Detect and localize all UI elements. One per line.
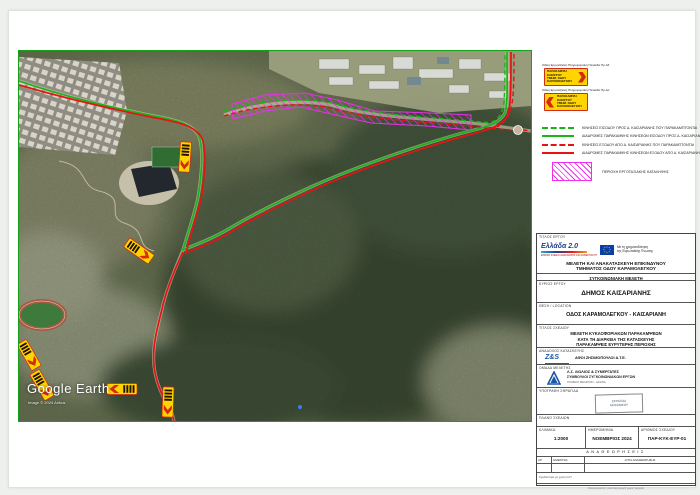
legend-item-worksite-area: ΠΕΡΙΟΧΗ ΕΡΓΟΤΑΞΙΑΚΗΣ ΚΑΤΑΛΗΨΗΣ [552,162,696,181]
location-section: ΘΕΣΗ / LOCATION ΟΔΟΣ ΚΑΡΑΜΟΛΕΓΚΟΥ - ΚΑΙΣ… [537,302,695,325]
detour-sign-left: ΠΑΡΑΚΑΜΨΗ ΚΛΕΙΣΤΟΥ ΤΜΗΜ. ΟΔΟΥ ΚΑΡΑΜΟΛΕΓΚ… [544,93,588,111]
location-value: ΟΔΟΣ ΚΑΡΑΜΟΛΕΓΚΟΥ - ΚΑΙΣΑΡΙΑΝΗ [537,312,695,318]
legend-item-green-dashed: ΚΙΝΗΣΕΙΣ ΕΙΣΟΔΟΥ ΠΡΟΣ Δ. ΚΑΙΣΑΡΙΑΝΗΣ ΠΟΥ… [542,126,696,130]
greece-2-0-logo: Ελλάδα 2.0 ΕΘΝΙΚΟ ΣΧΕΔΙΟ ΑΝΑΚΑΜΨΗΣ ΚΑΙ Α… [541,243,597,257]
worksite-area-swatch [552,162,592,181]
roundabout [514,126,523,135]
contractor-name: ΑΦΟΙ ΖΗΣΙΜΟΠΟΥΛΟΙ Α.Τ.Ε. [575,356,626,360]
satellite-map: Google Earth Image © 2024 Airbus [18,50,532,422]
signature-section: ΥΠΟΓΡΑΦΗ ΣΦΡΑΓΙΔΑ ΣΦΡΑΓΙΔΑ ΜΗΧΑΝΙΚΟΥ [537,387,695,415]
google-earth-logo: Google Earth [27,381,110,396]
design-team-section: ΟΜΑΔΑ ΜΕΛΕΤΗΣ Λ.Σ. ΛΙΟΛΙΟΣ & ΣΥΝΕΡΓΑΤΕΣ … [537,364,695,388]
detour-sign-marker [162,387,174,417]
revisions-columns: ΑΡ. ΗΜΕΡ/ΝΙΑ ΑΙΤΙΑ ΑΝΑΘΕΩΡΗΣΗΣ [537,457,695,464]
team-address: ΓΡΑΦΕΙΟ ΜΕΛΕΤΩΝ - ΑΘΗΝΑ [567,380,606,384]
project-section: ΤΙΤΛΟΣ ΕΡΓΟΥ Ελλάδα 2.0 ΕΘΝΙΚΟ ΣΧΕΔΙΟ ΑΝ… [537,234,695,280]
revision-note: Σχεδιάστηκε με χρήση Η/Υ [537,473,695,484]
revisions-header: ΑΝΑΘΕΩΡΗΣΕΙΣ [537,449,695,457]
chevron-left-icon [546,97,554,108]
project-label: ΤΙΤΛΟΣ ΕΡΓΟΥ [539,235,565,239]
funding-logos: Ελλάδα 2.0 ΕΘΝΙΚΟ ΣΧΕΔΙΟ ΑΝΑΚΑΜΨΗΣ ΚΑΙ Α… [541,240,691,260]
red-dashed-swatch [542,144,574,146]
title-block: ΤΙΤΛΟΣ ΕΡΓΟΥ Ελλάδα 2.0 ΕΘΝΙΚΟ ΣΧΕΔΙΟ ΑΝ… [536,233,696,486]
revisions-section: ΑΝΑΘΕΩΡΗΣΕΙΣ ΑΡ. ΗΜΕΡ/ΝΙΑ ΑΙΤΙΑ ΑΝΑΘΕΩΡΗ… [537,448,695,486]
eu-flag-icon [600,245,614,255]
red-solid-swatch [542,152,574,154]
green-dashed-swatch [542,127,574,129]
green-solid-swatch [542,135,574,137]
legend: Οδική Εργοταξιακή Πληροφοριακή Πινακίδα … [536,61,696,181]
eu-funding-text: Με τη χρηματοδότηση της Ευρωπαϊκής Ένωση… [617,246,653,254]
legend-item-green-solid: ΔΙΑΔΡΟΜΕΣ ΠΑΡΑΚΑΜΨΗΣ ΚΙΝΗΣΕΩΝ ΕΙΣΟΔΟΥ ΠΡ… [542,134,696,138]
team-role: ΣΥΜΒΟΥΛΟΙ ΣΥΓΚΟΙΝΩΝΙΑΚΩΝ ΕΡΓΩΝ [567,375,635,379]
detour-sign-text: ΠΑΡΑΚΑΜΨΗ ΚΛΕΙΣΤΟΥ ΤΜΗΜ. ΟΔΟΥ ΚΑΡΑΜΟΛΕΓΚ… [555,95,587,109]
legend-sign-caption: Οδική Εργοταξιακή Πληροφοριακή Πινακίδα … [542,88,696,92]
contractor-section: ΑΝΑΔΟΧΟΣ ΚΑΤΑΣΚΕΥΗΣ Z&S ΑΦΟΙ ΖΗΣΙΜΟΠΟΥΛΟ… [537,347,695,365]
contractor-logo: Z&S [545,354,569,364]
scale-date-number-row: ΚΛΙΜΑΚΑ 1:2000 ΗΜΕΡΟΜΗΝΙΑ ΝΟΕΜΒΡΙΟΣ 2024… [537,426,695,449]
engineer-stamp: ΣΦΡΑΓΙΔΑ ΜΗΧΑΝΙΚΟΥ [595,393,643,413]
chevron-right-icon [578,72,586,83]
detour-sign-marker [107,384,137,395]
design-team-logo [547,371,561,385]
legend-item-red-dashed: ΚΙΝΗΣΕΙΣ ΕΞΟΔΟΥ ΑΠΟ Δ. ΚΑΙΣΑΡΙΑΝΗΣ ΠΟΥ Π… [542,143,696,147]
scale-value: 1:2000 [537,436,585,441]
legend-sign-caption: Οδική Εργοταξιακή Πληροφοριακή Πινακίδα … [542,63,696,67]
date-value: ΝΟΕΜΒΡΙΟΣ 2024 [586,436,638,441]
revision-note: Απαγορεύεται η αναπαραγωγή χωρίς έγκριση [537,484,695,494]
team-name: Λ.Σ. ΛΙΟΛΙΟΣ & ΣΥΝΕΡΓΑΤΕΣ [567,370,619,374]
stadium-track [19,301,65,329]
detour-sign-right: ΠΑΡΑΚΑΜΨΗ ΚΛΕΙΣΤΟΥ ΤΜΗΜ. ΟΔΟΥ ΚΑΡΑΜΟΛΕΓΚ… [544,68,588,86]
date-cell: ΗΜΕΡΟΜΗΝΙΑ ΝΟΕΜΒΡΙΟΣ 2024 [586,427,639,449]
project-title: ΜΕΛΕΤΗ ΚΑΙ ΑΝΑΚΑΤΑΣΚΕΥΗ ΕΠΙΚΙΝΔΥΝΟΥ ΤΜΗΜ… [539,261,693,272]
imagery-credit: Image © 2024 Airbus [28,400,65,405]
drawing-title-section: ΤΙΤΛΟΣ ΣΧΕΔΙΟΥ ΜΕΛΕΤΗ ΚΥΚΛΟΦΟΡΙΑΚΩΝ ΠΑΡΑ… [537,324,695,348]
owner-name: ΔΗΜΟΣ ΚΑΙΣΑΡΙΑΝΗΣ [537,290,695,297]
detour-sign-text: ΠΑΡΑΚΑΜΨΗ ΚΛΕΙΣΤΟΥ ΤΜΗΜ. ΟΔΟΥ ΚΑΡΑΜΟΛΕΓΚ… [545,70,577,84]
scale-cell: ΚΛΙΜΑΚΑ 1:2000 [537,427,586,449]
detour-sign-marker [178,142,191,173]
owner-section: ΚΥΡΙΟΣ ΕΡΓΟΥ ΔΗΜΟΣ ΚΑΙΣΑΡΙΑΝΗΣ [537,280,695,303]
map-pin [298,405,302,409]
map-canvas [19,51,531,421]
number-cell: ΑΡΙΘΜΟΣ ΣΧΕΔΙΟΥ ΠΑΡ-ΚΥΚ-ΕΥΡ-01 [639,427,695,449]
drawing-number: ΠΑΡ-ΚΥΚ-ΕΥΡ-01 [639,436,695,441]
drawing-sheet: Google Earth Image © 2024 Airbus Οδική Ε… [8,10,696,488]
legend-item-red-solid: ΔΙΑΔΡΟΜΕΣ ΠΑΡΑΚΑΜΨΗΣ ΚΙΝΗΣΕΩΝ ΕΞΟΔΟΥ ΑΠΟ… [542,151,696,155]
revisions-empty-row [537,464,695,473]
